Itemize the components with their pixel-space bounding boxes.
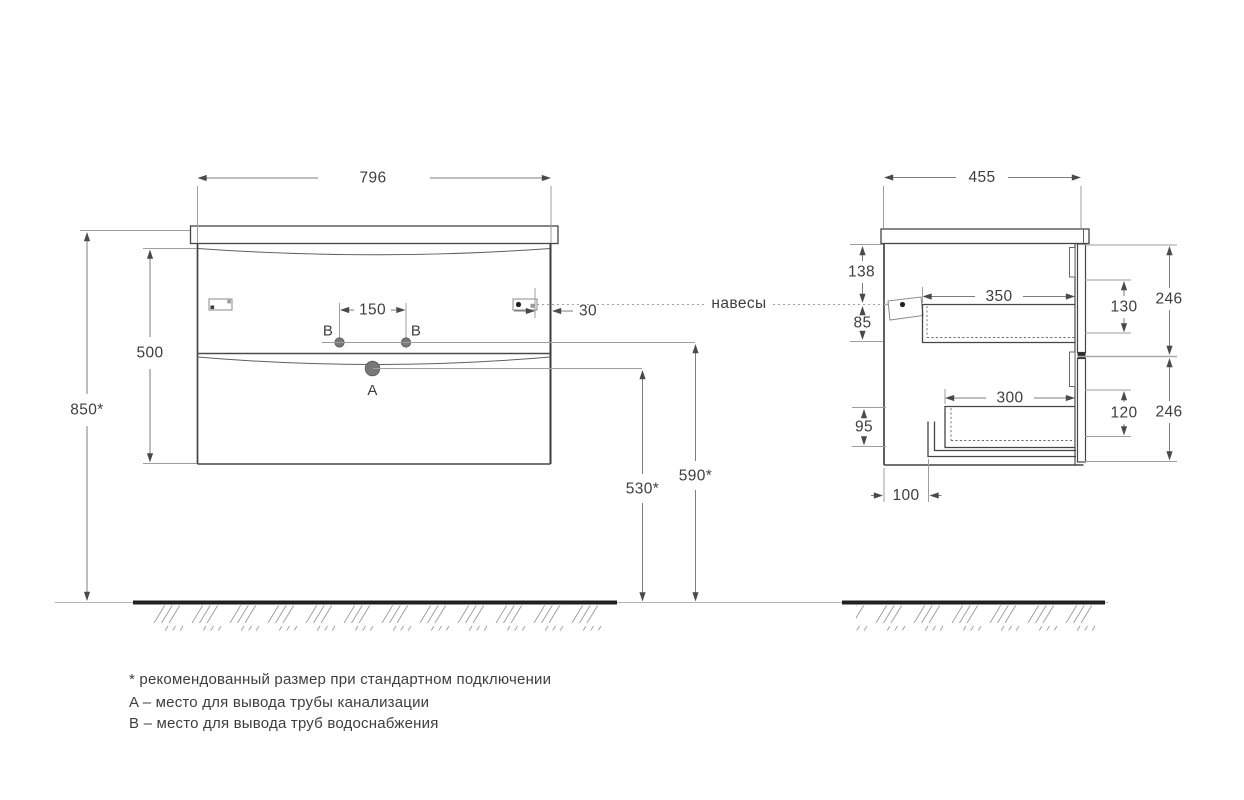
floor-hatching-right <box>856 606 1102 631</box>
side-depth-dimension: 455 <box>884 169 1082 228</box>
side-view: 455 138 85 350 <box>848 169 1183 504</box>
dim-label-120: 120 <box>1110 405 1137 422</box>
bottom-drawer-height-dimension: 120 <box>1085 390 1138 437</box>
front-body-height-dimension: 500 <box>136 249 196 464</box>
point-label-b-left: B <box>323 323 333 340</box>
pipe-channel <box>928 422 1076 457</box>
side-bottom-drawer-box <box>945 407 1075 448</box>
point-label-b-right: B <box>411 323 421 340</box>
dim-label-138: 138 <box>848 264 875 281</box>
technical-drawing-page: 796 500 850* 15 <box>0 0 1244 800</box>
top-drawer-height-dimension: 130 <box>1085 280 1138 333</box>
dim-label-500: 500 <box>136 345 163 362</box>
front-width-dimension: 796 <box>198 170 552 244</box>
hanger-top-offset-dimension: 138 85 <box>848 245 883 342</box>
dim-label-350: 350 <box>985 288 1012 305</box>
legend-a-note: A – место для вывода трубы канализации <box>129 694 429 711</box>
side-wall-bracket <box>884 297 923 320</box>
dim-label-95: 95 <box>855 419 873 436</box>
point-label-a: A <box>367 382 377 399</box>
front-mount-height-dimension: 850* <box>70 231 190 602</box>
dim-label-455: 455 <box>968 169 995 186</box>
bottom-drawer-depth-dimension: 300 <box>945 389 1075 407</box>
hangers-label: навесы <box>711 295 766 312</box>
vanity-dimension-drawing: 796 500 850* 15 <box>0 0 1244 800</box>
front-top-drawer-curve <box>198 249 551 255</box>
wall-bracket-left <box>209 299 232 310</box>
floor-hatching-left <box>150 606 602 631</box>
dim-label-130: 130 <box>1110 299 1137 316</box>
dim-label-530: 530* <box>626 481 660 498</box>
dim-label-590: 590* <box>679 468 713 485</box>
side-cabinet-body <box>884 244 1084 466</box>
wall-bracket-right <box>513 299 537 310</box>
legend-asterisk-note: * рекомендованный размер при стандартном… <box>129 671 551 688</box>
dim-label-850: 850* <box>70 402 104 419</box>
outlet-b-height-dimension: 590* <box>679 344 713 602</box>
side-countertop <box>881 229 1089 244</box>
dim-label-796: 796 <box>359 170 386 187</box>
dim-label-246-top: 246 <box>1155 291 1182 308</box>
legend-notes: * рекомендованный размер при стандартном… <box>129 671 551 732</box>
top-drawer-depth-dimension: 350 <box>923 287 1076 305</box>
bottom-offset-dimension: 95 <box>852 408 886 447</box>
dim-label-30: 30 <box>579 303 597 320</box>
side-bottom-drawer-rail <box>1070 352 1076 387</box>
dim-label-85: 85 <box>853 315 871 332</box>
dim-label-300: 300 <box>996 390 1023 407</box>
side-drawer-fronts <box>1078 244 1086 462</box>
legend-b-note: B – место для вывода труб водоснабжения <box>129 715 439 732</box>
outlet-b-spacing-dimension: 150 <box>340 302 407 338</box>
outlet-a-height-dimension: 530* <box>626 370 660 602</box>
floor-line <box>55 603 1108 631</box>
dim-label-246-bottom: 246 <box>1155 404 1182 421</box>
front-view: 796 500 850* 15 <box>70 170 888 602</box>
side-top-drawer-rail <box>1070 248 1076 278</box>
dim-label-100: 100 <box>892 487 919 504</box>
front-countertop <box>191 226 559 244</box>
side-top-drawer-box <box>923 305 1076 343</box>
dim-label-150: 150 <box>359 302 386 319</box>
